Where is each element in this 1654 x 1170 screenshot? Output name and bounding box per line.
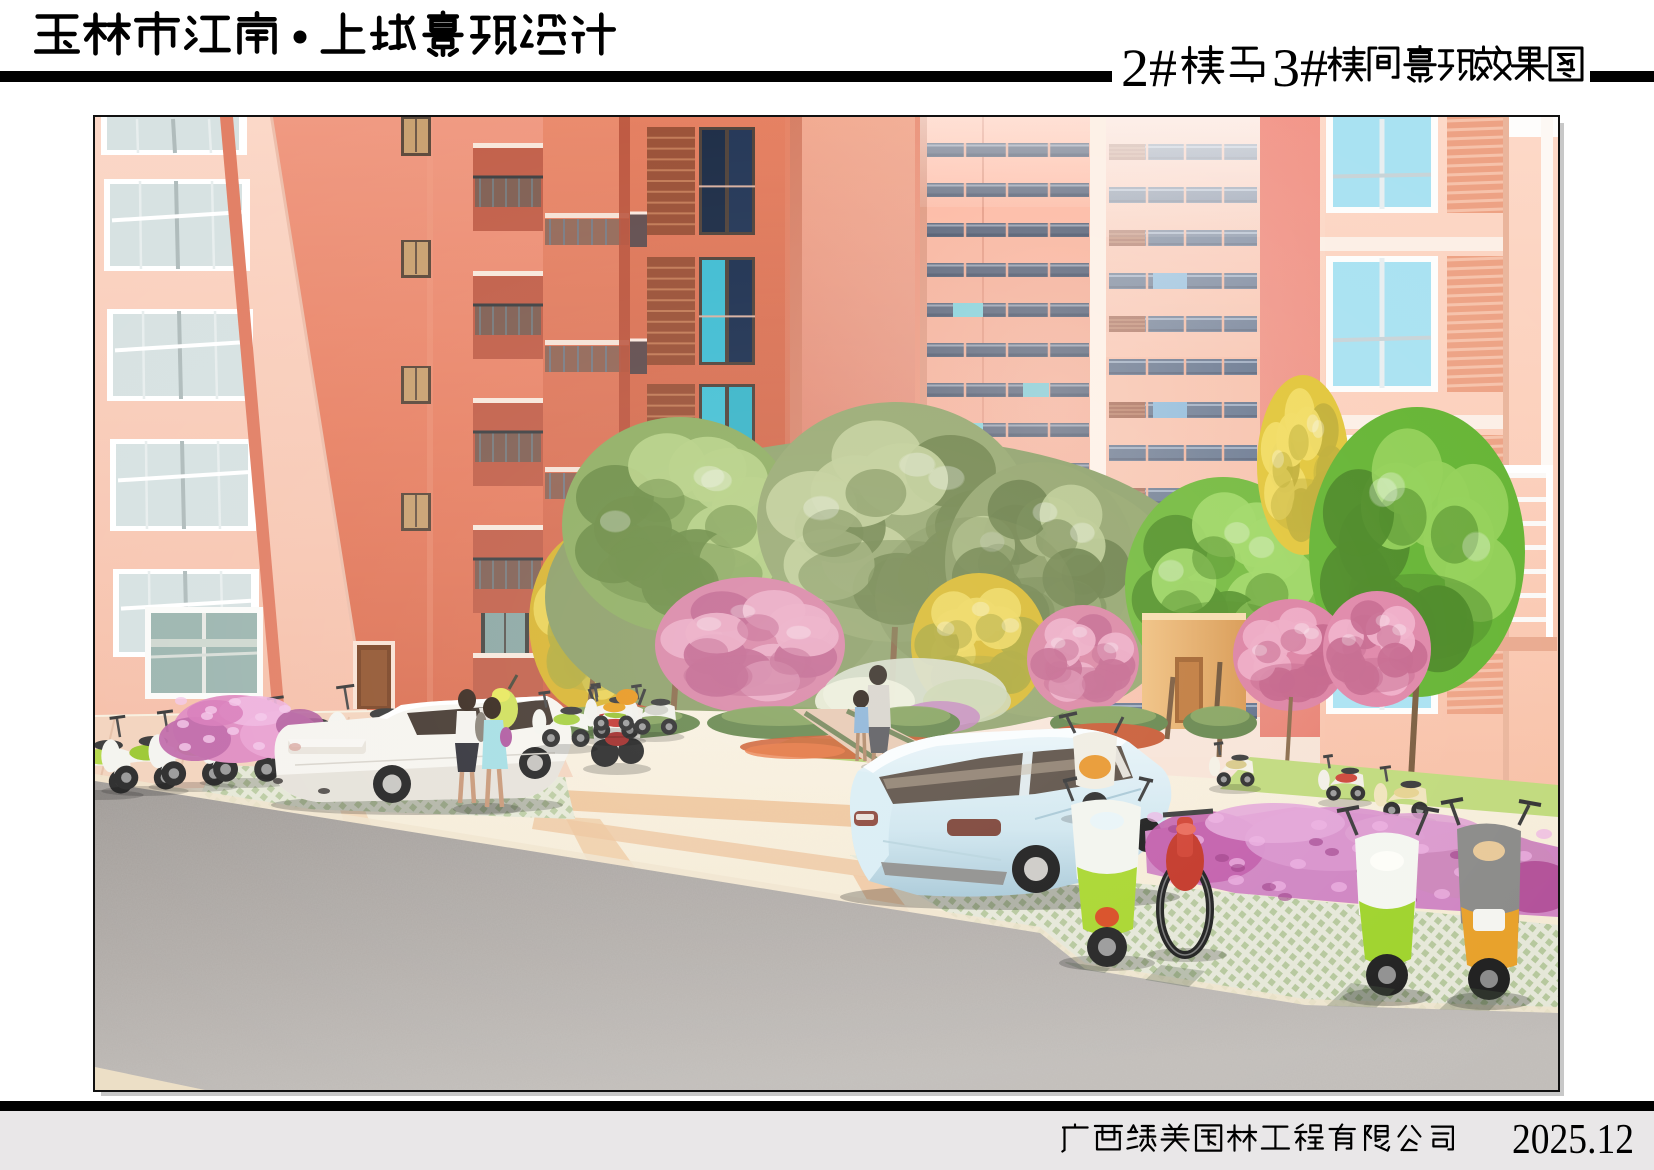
svg-text:2025.12: 2025.12 [1512, 1117, 1634, 1163]
svg-text:2#: 2# [1121, 38, 1177, 98]
svg-text:3#: 3# [1272, 38, 1328, 98]
